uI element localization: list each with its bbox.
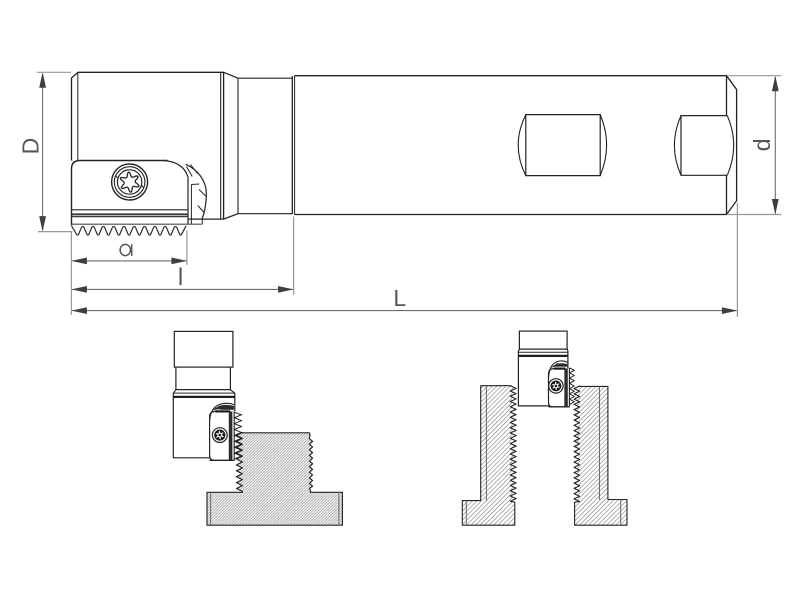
svg-text:d: d: [749, 139, 775, 152]
svg-text:D: D: [18, 138, 44, 155]
svg-text:L: L: [393, 285, 406, 311]
svg-text:l: l: [178, 264, 183, 291]
